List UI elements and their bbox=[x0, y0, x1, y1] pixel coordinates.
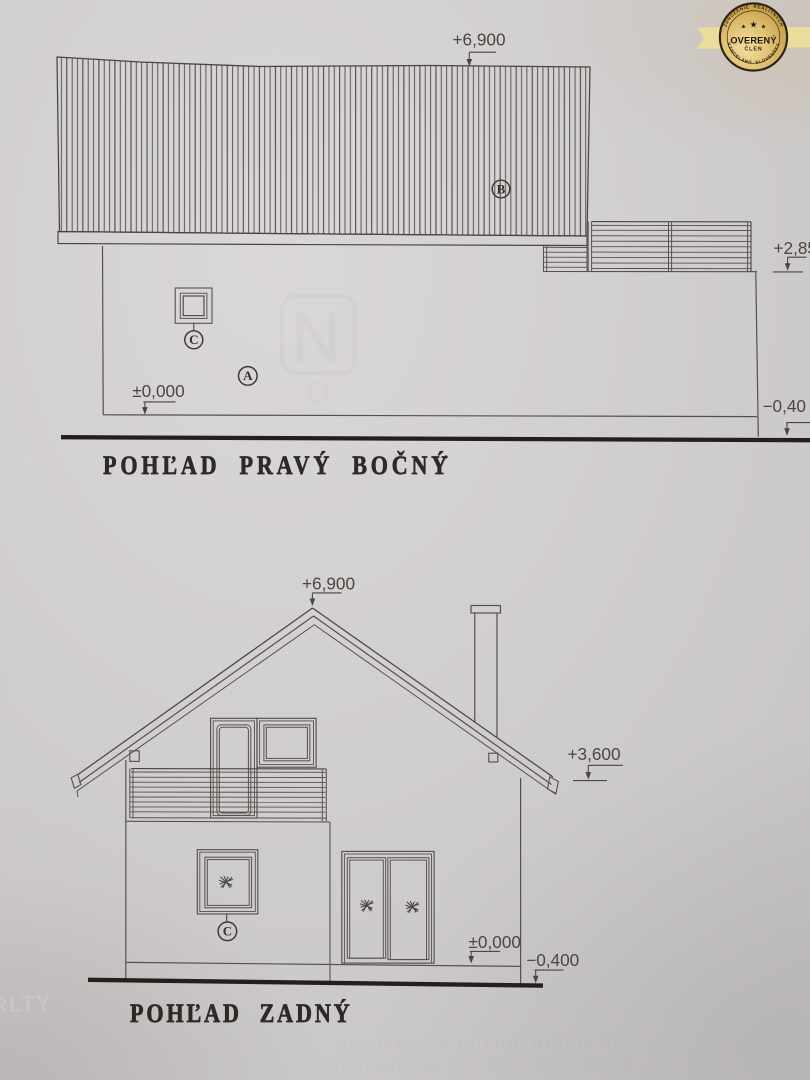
svg-text:POHĽAD ZADNÝ: POHĽAD ZADNÝ bbox=[130, 1000, 353, 1028]
svg-text:+2,85: +2,85 bbox=[774, 238, 810, 258]
svg-text:Dom: Dom bbox=[0, 451, 32, 472]
svg-text:+6,900: +6,900 bbox=[453, 30, 506, 50]
svg-text:★: ★ bbox=[749, 20, 757, 30]
svg-text:POHĽAD PRAVÝ BOČNÝ: POHĽAD PRAVÝ BOČNÝ bbox=[103, 451, 451, 480]
svg-text:★: ★ bbox=[761, 24, 766, 31]
svg-text:C: C bbox=[223, 924, 232, 939]
svg-text:±0,000: ±0,000 bbox=[132, 381, 184, 401]
svg-text:★: ★ bbox=[741, 24, 746, 31]
svg-text:±0,000: ±0,000 bbox=[469, 932, 521, 952]
svg-text:+6,900: +6,900 bbox=[302, 574, 355, 594]
svg-text:RLTY: RLTY bbox=[0, 990, 52, 1017]
svg-text:B: B bbox=[497, 181, 506, 196]
svg-text:−0,40: −0,40 bbox=[763, 396, 807, 416]
svg-text:OVERENE: OVERENE bbox=[0, 669, 12, 742]
svg-text:OVERENÝ: OVERENÝ bbox=[730, 35, 776, 46]
svg-text:ČLEN: ČLEN bbox=[744, 46, 762, 53]
svg-text:−0,400: −0,400 bbox=[526, 950, 579, 970]
svg-text:A: A bbox=[243, 368, 253, 383]
svg-text:C: C bbox=[189, 332, 198, 347]
svg-text:+3,600: +3,600 bbox=[568, 744, 621, 764]
